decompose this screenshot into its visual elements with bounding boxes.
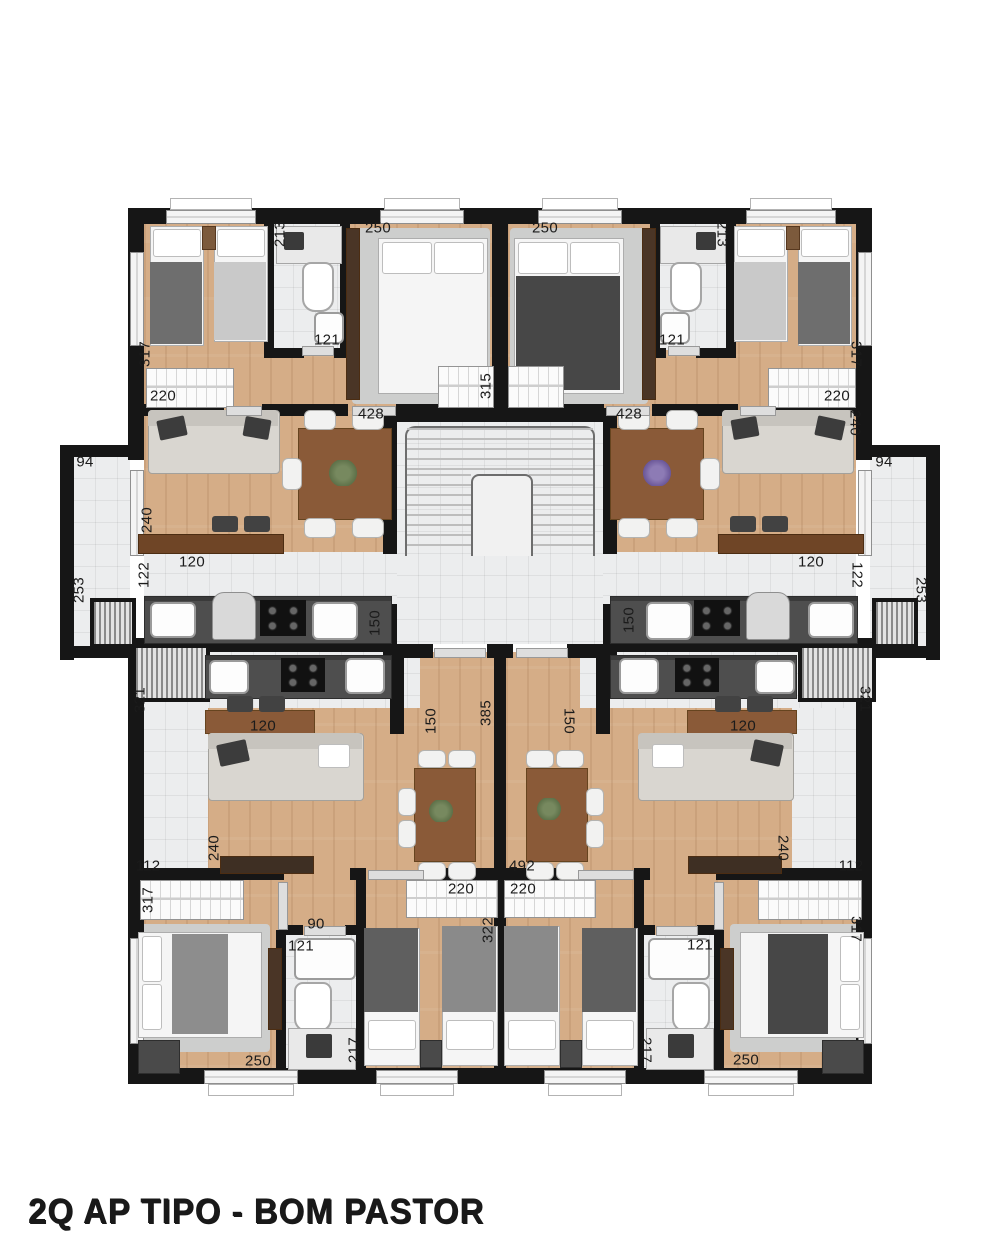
window-top-4 — [746, 210, 836, 224]
ll-toilet — [294, 982, 332, 1032]
ul-master-wardrobe-panel — [346, 228, 360, 400]
dimension-label: 120 — [250, 718, 276, 735]
ll-kitchen-sink-1 — [209, 660, 249, 694]
ur-twin-bed-1-blanket — [798, 262, 850, 344]
dimension-label: 112 — [136, 858, 161, 875]
dimension-label: 213 — [272, 221, 289, 247]
dimension-label: 150 — [423, 708, 440, 734]
dimension-label: 120 — [179, 554, 205, 571]
ll-bed2-nightstand — [420, 1040, 442, 1068]
stair-void — [471, 474, 533, 556]
dimension-label: 317 — [848, 916, 865, 942]
stair-treads-top — [407, 428, 593, 474]
ll-cooktop — [281, 658, 325, 692]
ul-twin-bed-1-pillow — [153, 229, 201, 257]
lr-master-door — [714, 882, 724, 930]
ll-table-plant — [428, 800, 454, 822]
dimension-label: 90 — [307, 916, 324, 933]
ul-master-pillow-2 — [434, 242, 484, 274]
lr-toilet — [672, 982, 710, 1032]
dimension-label: 220 — [824, 388, 850, 405]
ul-bath-bottom-a — [264, 348, 304, 358]
lr-corridor-stub — [596, 644, 610, 734]
dimension-label: 253 — [71, 577, 88, 603]
ur-chair-4 — [666, 518, 698, 538]
lr-master-pillow-1 — [840, 936, 860, 982]
ll-tv-console — [220, 856, 314, 874]
left-vent-shaft-upper — [90, 598, 136, 648]
ul-chair-4 — [352, 518, 384, 538]
lr-kitchen-sink-1 — [755, 660, 795, 694]
ul-bed2-door — [226, 406, 262, 416]
ur-stool-2 — [762, 516, 788, 532]
sill-bottom-2 — [380, 1084, 454, 1096]
dimension-label: 250 — [245, 1053, 271, 1070]
ll-master-door — [278, 882, 288, 930]
ul-sofa-pillow-2 — [242, 416, 271, 440]
dimension-label: 321 — [857, 686, 874, 712]
ul-twin-bed-1-blanket — [150, 262, 202, 344]
ur-bath-bottom-a — [696, 348, 736, 358]
ll-tv-panel — [268, 948, 282, 1030]
lr-chair-6 — [586, 820, 604, 848]
window-right-upper — [858, 252, 872, 346]
ll-bed2-bed-a-pillow — [368, 1020, 416, 1050]
ur-toilet — [670, 262, 702, 312]
dimension-label: 492 — [509, 858, 535, 875]
lr-chair-1 — [526, 750, 554, 768]
ll-stool-2 — [259, 696, 285, 712]
sill-bottom-4 — [708, 1084, 794, 1096]
ur-chair-3 — [618, 518, 650, 538]
ul-chair-3 — [304, 518, 336, 538]
ur-twin-bed-2-pillow — [737, 229, 785, 257]
lr-table-plant — [536, 798, 562, 820]
dimension-label: 150 — [367, 610, 384, 636]
ll-master-blanket — [172, 934, 228, 1034]
dimension-label: 250 — [532, 220, 558, 237]
dimension-label: 217 — [346, 1037, 363, 1063]
dimension-label: 428 — [358, 406, 384, 423]
ll-shower-head — [306, 1034, 332, 1058]
dimension-label: 112 — [839, 858, 864, 875]
sill-bottom-1 — [208, 1084, 294, 1096]
lr-bed2-bed-b-pillow — [508, 1020, 556, 1050]
window-top-1 — [166, 210, 256, 224]
ur-chair-5 — [700, 458, 720, 490]
window-top-2 — [380, 210, 464, 224]
ur-fridge — [746, 592, 790, 640]
floor-plan: 2502131213172204283159424012012225315025… — [0, 0, 1000, 1243]
ll-chair-4 — [448, 862, 476, 880]
ll-bed2-bed-b-pillow — [446, 1020, 494, 1050]
dimension-label: 213 — [714, 221, 731, 247]
ul-tv-rack — [138, 534, 284, 554]
lr-bed2-bed-a-blanket — [582, 928, 636, 1012]
lr-bed2-nightstand — [560, 1040, 582, 1068]
dimension-label: 317 — [848, 341, 865, 367]
lr-bed2-door — [578, 870, 634, 880]
ll-master-pillow-2 — [142, 984, 162, 1030]
ur-twin-bed-2-blanket — [734, 262, 786, 340]
lr-tv-panel — [720, 948, 734, 1030]
lr-bed2-bed-a-pillow — [586, 1020, 634, 1050]
ul-twin-bed-2-pillow — [217, 229, 265, 257]
dimension-label: 121 — [687, 937, 713, 954]
lr-master-nightstand — [822, 1040, 864, 1074]
sill-top-2 — [384, 198, 460, 210]
ur-master-wardrobe-panel — [642, 228, 656, 400]
ul-master-pillow-1 — [382, 242, 432, 274]
dimension-label: 94 — [875, 454, 892, 471]
dimension-label: 250 — [733, 1052, 759, 1069]
dimension-label: 120 — [798, 554, 824, 571]
dimension-label: 121 — [314, 332, 340, 349]
ll-chair-2 — [448, 750, 476, 768]
dimension-label: 122 — [849, 562, 866, 588]
window-left-upper — [130, 252, 144, 346]
ll-kitchen-sink-2 — [345, 658, 385, 694]
ul-chair-1 — [304, 410, 336, 430]
ll-sofa-pillow-2 — [318, 744, 350, 768]
dimension-label: 120 — [730, 718, 756, 735]
dimension-label: 121 — [288, 938, 314, 955]
hall-door-left — [434, 648, 486, 658]
dimension-label: 240 — [775, 835, 792, 861]
window-bottom-3 — [544, 1070, 626, 1084]
ul-table-plant — [328, 460, 358, 486]
dimension-label: 315 — [478, 373, 495, 399]
lr-cooktop — [675, 658, 719, 692]
ur-hall-wardrobe — [508, 366, 564, 408]
lr-stool-2 — [747, 696, 773, 712]
ul-stool-2 — [244, 516, 270, 532]
dimension-label: 240 — [139, 507, 156, 533]
ul-stool-1 — [212, 516, 238, 532]
dimension-label: 122 — [136, 562, 153, 588]
stair-treads-left — [407, 474, 471, 554]
dimension-label: 220 — [510, 881, 536, 898]
ul-twin-bed-2-blanket — [214, 262, 266, 340]
right-balcony-wall-outer — [926, 445, 940, 660]
ll-chair-1 — [418, 750, 446, 768]
ur-cooktop — [694, 600, 740, 636]
lr-chair-2 — [556, 750, 584, 768]
dimension-label: 240 — [847, 410, 864, 436]
dimension-label: 150 — [621, 607, 638, 633]
ul-toilet — [302, 262, 334, 312]
right-vent-shaft-upper — [872, 598, 918, 648]
sill-top-1 — [170, 198, 252, 210]
ll-stool-1 — [227, 696, 253, 712]
plan-title: 2Q AP TIPO - BOM PASTOR — [28, 1190, 484, 1231]
dimension-label: 317 — [137, 341, 154, 367]
ur-tv-rack — [718, 534, 864, 554]
dimension-label: 322 — [480, 917, 497, 943]
ul-chair-5 — [282, 458, 302, 490]
ul-fridge — [212, 592, 256, 640]
dimension-label: 250 — [365, 220, 391, 237]
right-balcony-wall-top — [856, 445, 940, 457]
ul-kitchen-sink-2 — [312, 602, 358, 640]
dimension-label: 121 — [659, 332, 685, 349]
left-balcony-wall-outer — [60, 445, 74, 660]
ul-nightstand — [202, 226, 216, 250]
dimension-label: 220 — [448, 881, 474, 898]
lr-bed2-bed-b-blanket — [504, 926, 558, 1012]
dimension-label: 253 — [913, 577, 930, 603]
lr-sofa-pillow-1 — [652, 744, 684, 768]
lr-kitchen-sink-2 — [619, 658, 659, 694]
window-bottom-2 — [376, 1070, 458, 1084]
ur-bed2-door — [740, 406, 776, 416]
ur-chair-2 — [666, 410, 698, 430]
ll-corridor-stub — [390, 644, 404, 734]
ur-kitchen-sink-1 — [808, 602, 854, 638]
ur-twin-bed-1-pillow — [801, 229, 849, 257]
ll-chair-5 — [398, 788, 416, 816]
lr-bath-top-b — [644, 925, 655, 935]
dimension-label: 220 — [150, 388, 176, 405]
dimension-label: 150 — [561, 708, 578, 734]
dimension-label: 240 — [206, 835, 223, 861]
ul-cooktop — [260, 600, 306, 636]
stair-treads-right — [529, 474, 593, 554]
ll-bed2-door — [368, 870, 424, 880]
ll-bed2-bed-a-blanket — [364, 928, 418, 1012]
ur-stool-1 — [730, 516, 756, 532]
window-bottom-1 — [204, 1070, 298, 1084]
lr-master-wardrobe — [758, 880, 862, 920]
ur-kitchen-sink-2 — [646, 602, 692, 640]
lr-chair-5 — [586, 788, 604, 816]
ur-nightstand — [786, 226, 800, 250]
ll-master-nightstand — [138, 1040, 180, 1074]
sill-top-4 — [750, 198, 832, 210]
ur-master-pillow-1 — [518, 242, 568, 274]
ur-master-pillow-2 — [570, 242, 620, 274]
dimension-label: 217 — [638, 1037, 655, 1063]
dimension-label: 385 — [478, 700, 495, 726]
sill-top-3 — [542, 198, 618, 210]
lower-right-service-strip — [792, 708, 856, 868]
ul-kitchen-sink-1 — [150, 602, 196, 638]
dimension-label: 94 — [76, 454, 93, 471]
lr-shower-head — [668, 1034, 694, 1058]
ll-master-pillow-1 — [142, 936, 162, 982]
ll-bath-top-b — [345, 925, 356, 935]
left-balcony-wall-top — [60, 445, 144, 457]
dimension-label: 317 — [140, 887, 157, 913]
dimension-label: 428 — [616, 406, 642, 423]
ll-chair-6 — [398, 820, 416, 848]
lr-bath-door — [656, 926, 698, 936]
lower-left-service-strip — [144, 708, 208, 868]
window-bottom-4 — [704, 1070, 798, 1084]
ur-table-plant — [642, 460, 672, 486]
lr-tv-console — [688, 856, 782, 874]
lr-stool-1 — [715, 696, 741, 712]
hall-door-right — [516, 648, 568, 658]
lr-master-pillow-2 — [840, 984, 860, 1030]
lr-master-blanket — [768, 934, 828, 1034]
sill-bottom-3 — [548, 1084, 622, 1096]
dimension-label: 321 — [132, 687, 149, 713]
